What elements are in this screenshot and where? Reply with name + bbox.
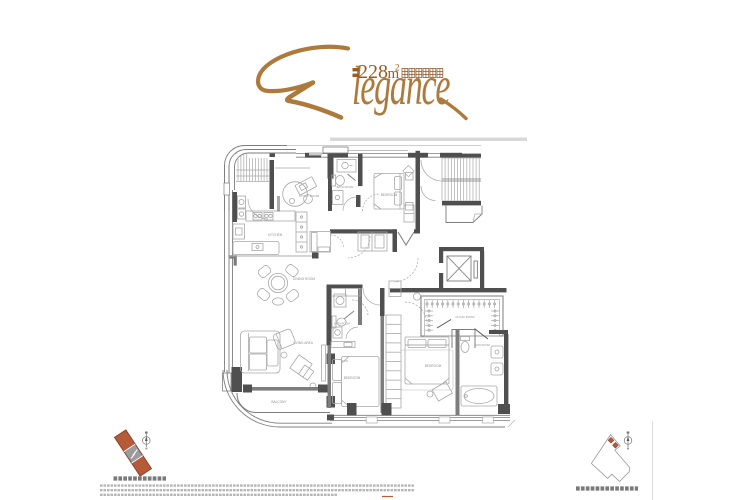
svg-text:BATH ROOM: BATH ROOM: [474, 343, 490, 347]
svg-text:BEDROOM: BEDROOM: [344, 376, 361, 380]
svg-text:CLOAK ROOM: CLOAK ROOM: [456, 315, 476, 319]
svg-text:BEDROOM: BEDROOM: [425, 364, 442, 368]
svg-text:KITCHEN: KITCHEN: [268, 233, 283, 237]
svg-text:BALCONY: BALCONY: [271, 400, 287, 404]
svg-text:DINING ROOM: DINING ROOM: [293, 277, 315, 281]
svg-text:228: 228: [358, 61, 388, 83]
svg-text:2: 2: [395, 63, 400, 73]
svg-text:LIVING AREA: LIVING AREA: [293, 341, 314, 345]
svg-text:BEDROOM: BEDROOM: [381, 193, 398, 197]
